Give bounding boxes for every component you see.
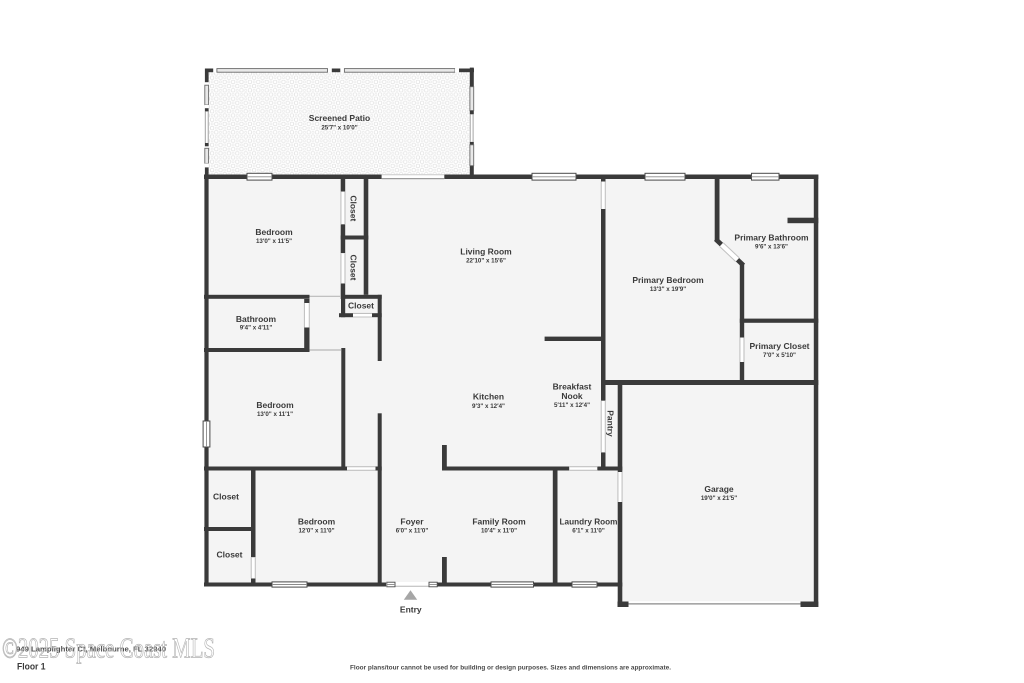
svg-text:Closet: Closet <box>348 301 374 311</box>
svg-text:Laundry Room: Laundry Room <box>560 516 618 526</box>
svg-text:19′0" x 21′5": 19′0" x 21′5" <box>701 495 737 502</box>
svg-text:Bedroom: Bedroom <box>298 516 336 526</box>
svg-text:Family Room: Family Room <box>472 516 526 526</box>
svg-text:Kitchen: Kitchen <box>473 391 504 401</box>
svg-text:12′0" x 11′0": 12′0" x 11′0" <box>298 527 334 534</box>
svg-text:Foyer: Foyer <box>400 516 424 526</box>
svg-text:25′7" x 10′0": 25′7" x 10′0" <box>321 124 357 131</box>
svg-text:9′6" x 13′6": 9′6" x 13′6" <box>755 244 788 251</box>
svg-text:22′10" x 15′6": 22′10" x 15′6" <box>466 258 506 265</box>
svg-text:5′11" x 12′4": 5′11" x 12′4" <box>554 402 590 409</box>
svg-text:Nook: Nook <box>561 391 583 401</box>
svg-text:6′1" x 11′0": 6′1" x 11′0" <box>572 527 605 534</box>
svg-text:Closet: Closet <box>349 195 359 221</box>
svg-text:6′0" x 11′0": 6′0" x 11′0" <box>396 527 429 534</box>
svg-text:13′3" x 19′9": 13′3" x 19′9" <box>650 286 686 293</box>
svg-text:Bedroom: Bedroom <box>256 400 294 410</box>
svg-text:9′3" x 12′4": 9′3" x 12′4" <box>472 403 505 410</box>
svg-text:Floor 1: Floor 1 <box>17 661 46 672</box>
svg-text:Primary Bathroom: Primary Bathroom <box>734 233 809 243</box>
svg-text:Garage: Garage <box>704 484 734 494</box>
svg-text:Closet: Closet <box>213 492 239 502</box>
svg-text:Floor plans/tour cannot be use: Floor plans/tour cannot be used for buil… <box>350 664 671 671</box>
svg-text:Closet: Closet <box>217 550 243 560</box>
svg-text:Primary Bedroom: Primary Bedroom <box>632 275 704 285</box>
svg-text:Bathroom: Bathroom <box>236 314 277 324</box>
svg-text:Closet: Closet <box>349 255 359 281</box>
svg-text:Living Room: Living Room <box>460 247 512 257</box>
svg-text:©2025 Space Coast MLS: ©2025 Space Coast MLS <box>2 634 215 665</box>
svg-text:Bedroom: Bedroom <box>255 227 293 237</box>
svg-text:7′0" x 5′10": 7′0" x 5′10" <box>763 352 796 359</box>
svg-text:Primary Closet: Primary Closet <box>750 341 810 351</box>
svg-text:Entry: Entry <box>400 605 422 615</box>
svg-text:Breakfast: Breakfast <box>553 381 592 391</box>
svg-text:Screened Patio: Screened Patio <box>309 113 370 123</box>
svg-text:9′4" x 4′11": 9′4" x 4′11" <box>240 325 273 332</box>
svg-text:10′4" x 11′0": 10′4" x 11′0" <box>481 527 517 534</box>
svg-text:13′0" x 11′5": 13′0" x 11′5" <box>256 238 292 245</box>
svg-text:13′0" x 11′1": 13′0" x 11′1" <box>257 411 293 418</box>
svg-text:Pantry: Pantry <box>605 410 615 437</box>
